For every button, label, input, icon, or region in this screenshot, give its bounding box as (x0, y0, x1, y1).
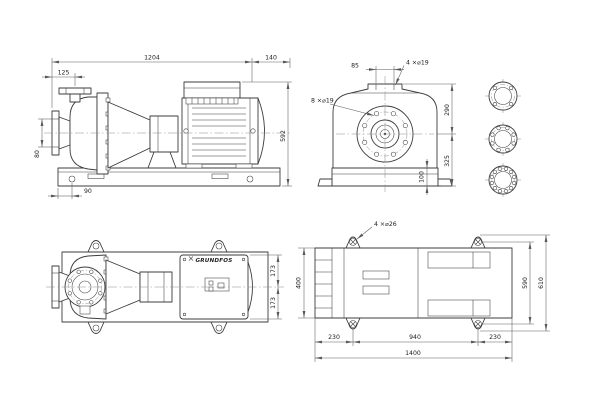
dim-center-to-rear: 173 (270, 297, 277, 309)
bearing-pedestal (148, 152, 176, 168)
label-suction-holes: 8 ×⌀19 (311, 98, 334, 105)
dim-center-to-base: 325 (444, 155, 451, 167)
top-view: GRUNDFOS 173 173 (46, 241, 284, 334)
dim-overall-length: 1204 (144, 55, 160, 62)
adapter-cone (108, 102, 150, 168)
dim-anchor-width: 590 (522, 277, 529, 289)
dim-discharge-bolt-spacing: 85 (351, 63, 359, 70)
terminal-plate (205, 278, 229, 291)
pump-mount-slot (363, 286, 389, 294)
label-anchor-holes: 4 ×⌀26 (374, 221, 397, 228)
flange-details (485, 79, 521, 197)
side-view: 1204 140 125 80 592 90 (34, 55, 292, 200)
bearing-housing (150, 116, 178, 152)
discharge-flange (59, 88, 91, 94)
dim-suction-span: 80 (34, 150, 41, 158)
flange-4-hole (485, 79, 521, 113)
flange-8-hole (485, 122, 521, 156)
label-discharge-holes: 4 ×⌀19 (406, 60, 429, 67)
dim-plate-width: 400 (296, 277, 303, 289)
flange-12-hole (485, 163, 521, 197)
dim-anchor-right: 230 (489, 334, 501, 341)
dim-anchor-left: 230 (328, 334, 340, 341)
dim-overall-height: 592 (280, 130, 287, 142)
baseplate-view: 4 ×⌀26 400 230 940 230 1400 590 (296, 221, 551, 362)
motor-mount-pad (428, 252, 490, 268)
dim-center-to-top: 290 (444, 104, 451, 116)
pump-technical-drawing: 1204 140 125 80 592 90 (0, 0, 600, 400)
motor-side (182, 82, 265, 168)
dim-anchor-offset: 90 (84, 188, 92, 195)
dim-center-to-front: 173 (270, 265, 277, 277)
pump-mount-slot (363, 271, 389, 279)
end-view: 85 4 ×⌀19 8 ×⌀19 290 325 100 (311, 60, 456, 196)
motor-mount-pad (428, 300, 490, 316)
dim-plate-length: 1400 (405, 350, 421, 357)
volute-casing (70, 97, 97, 170)
dim-anchor-span: 940 (409, 334, 421, 341)
dim-flange-offset: 125 (58, 70, 70, 77)
dim-baseplate-height: 100 (419, 171, 426, 183)
terminal-box (184, 82, 240, 98)
dim-ear-width: 610 (538, 277, 545, 289)
grundfos-logo-text: GRUNDFOS (196, 258, 233, 264)
drawing-sheet: 1204 140 125 80 592 90 (0, 0, 600, 400)
side-baseplate (58, 168, 280, 186)
dim-rear-overhang: 140 (265, 55, 277, 62)
